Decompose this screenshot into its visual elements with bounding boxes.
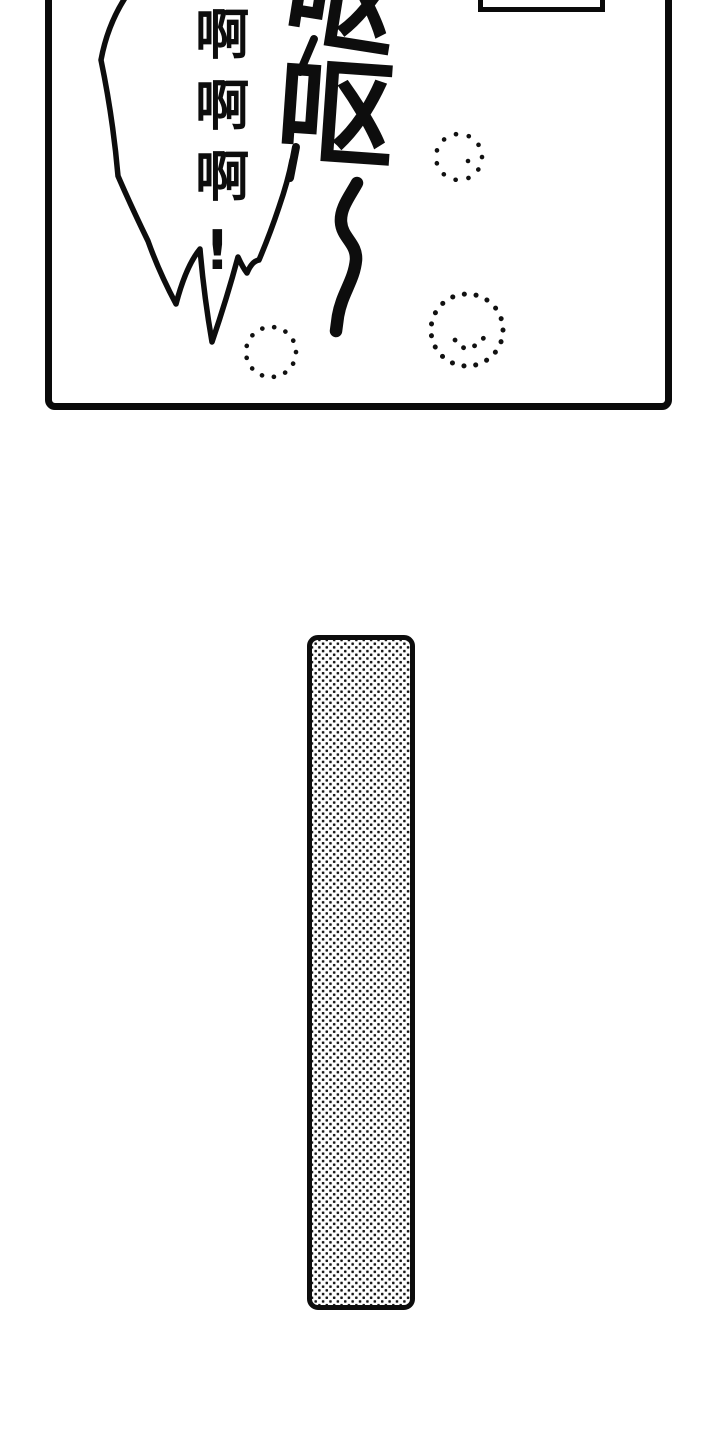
screentone-bar	[307, 635, 415, 1310]
sfx-vomit-2: 呕	[273, 52, 399, 178]
manga-page: 啊啊啊! 呕 呕	[0, 0, 720, 1440]
caption-box-partial	[478, 0, 605, 12]
scream-text: 啊啊啊!	[184, 6, 249, 326]
